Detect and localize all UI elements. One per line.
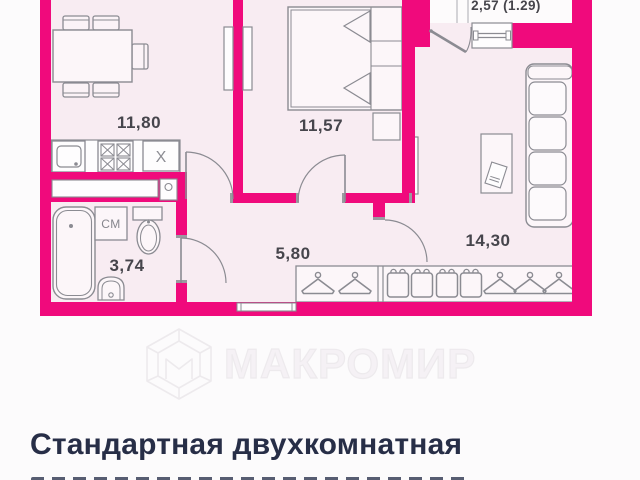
wall-hall-right <box>345 193 412 203</box>
chair <box>93 16 119 30</box>
kitchen-sink <box>52 141 85 172</box>
floor-plan: X СМ <box>0 0 640 480</box>
wall-bathroom-right-lower <box>176 283 187 308</box>
listing-floorplan-image: X СМ <box>0 0 640 480</box>
appliance-spot-label: X <box>156 149 167 166</box>
sofa <box>526 64 573 227</box>
room-area-label-bedroom: 11,57 <box>299 116 343 135</box>
room-area-label-living-room: 14,30 <box>465 231 510 250</box>
storage-box-icon <box>388 269 409 297</box>
bathroom-sink <box>98 277 124 300</box>
coffee-table <box>481 134 512 193</box>
bathtub <box>53 207 95 299</box>
stove <box>98 141 133 172</box>
wardrobe <box>296 266 578 302</box>
chair <box>132 44 148 69</box>
wall-left <box>40 0 51 316</box>
room-area-label-kitchen: 11,80 <box>117 113 161 132</box>
nightstand <box>373 113 400 140</box>
room-area-label-bathroom: 3,74 <box>109 256 144 275</box>
chair <box>63 16 89 30</box>
wall-bottom <box>40 302 592 316</box>
wall-hall-left <box>233 193 296 203</box>
room-area-label-hallway: 5,80 <box>275 244 310 263</box>
storage-box-icon <box>412 269 433 297</box>
washing-machine-label: СМ <box>101 217 121 231</box>
chair <box>93 83 119 97</box>
storage-box-icon <box>437 269 458 297</box>
room-area-label-balcony: 2,57 (1.29) <box>471 0 541 13</box>
wall-kitchen-bedroom <box>233 0 243 203</box>
appliance-spot: X <box>143 141 179 171</box>
listing-title: Стандартная двухкомнатная <box>30 428 610 462</box>
balcony-window <box>472 23 512 48</box>
wall-right <box>572 0 592 316</box>
kitchen-counter: X <box>51 140 180 173</box>
duct-niche <box>52 180 158 197</box>
hall-radiator <box>237 303 296 311</box>
vent-shaft <box>160 179 177 200</box>
storage-box-icon <box>461 269 482 297</box>
bed <box>288 7 402 110</box>
dining-table <box>53 30 132 82</box>
wall-under-balcony <box>512 23 574 48</box>
wall-bedroom-right <box>402 0 415 203</box>
washing-machine-spot: СМ <box>95 207 127 240</box>
chair <box>63 83 89 97</box>
